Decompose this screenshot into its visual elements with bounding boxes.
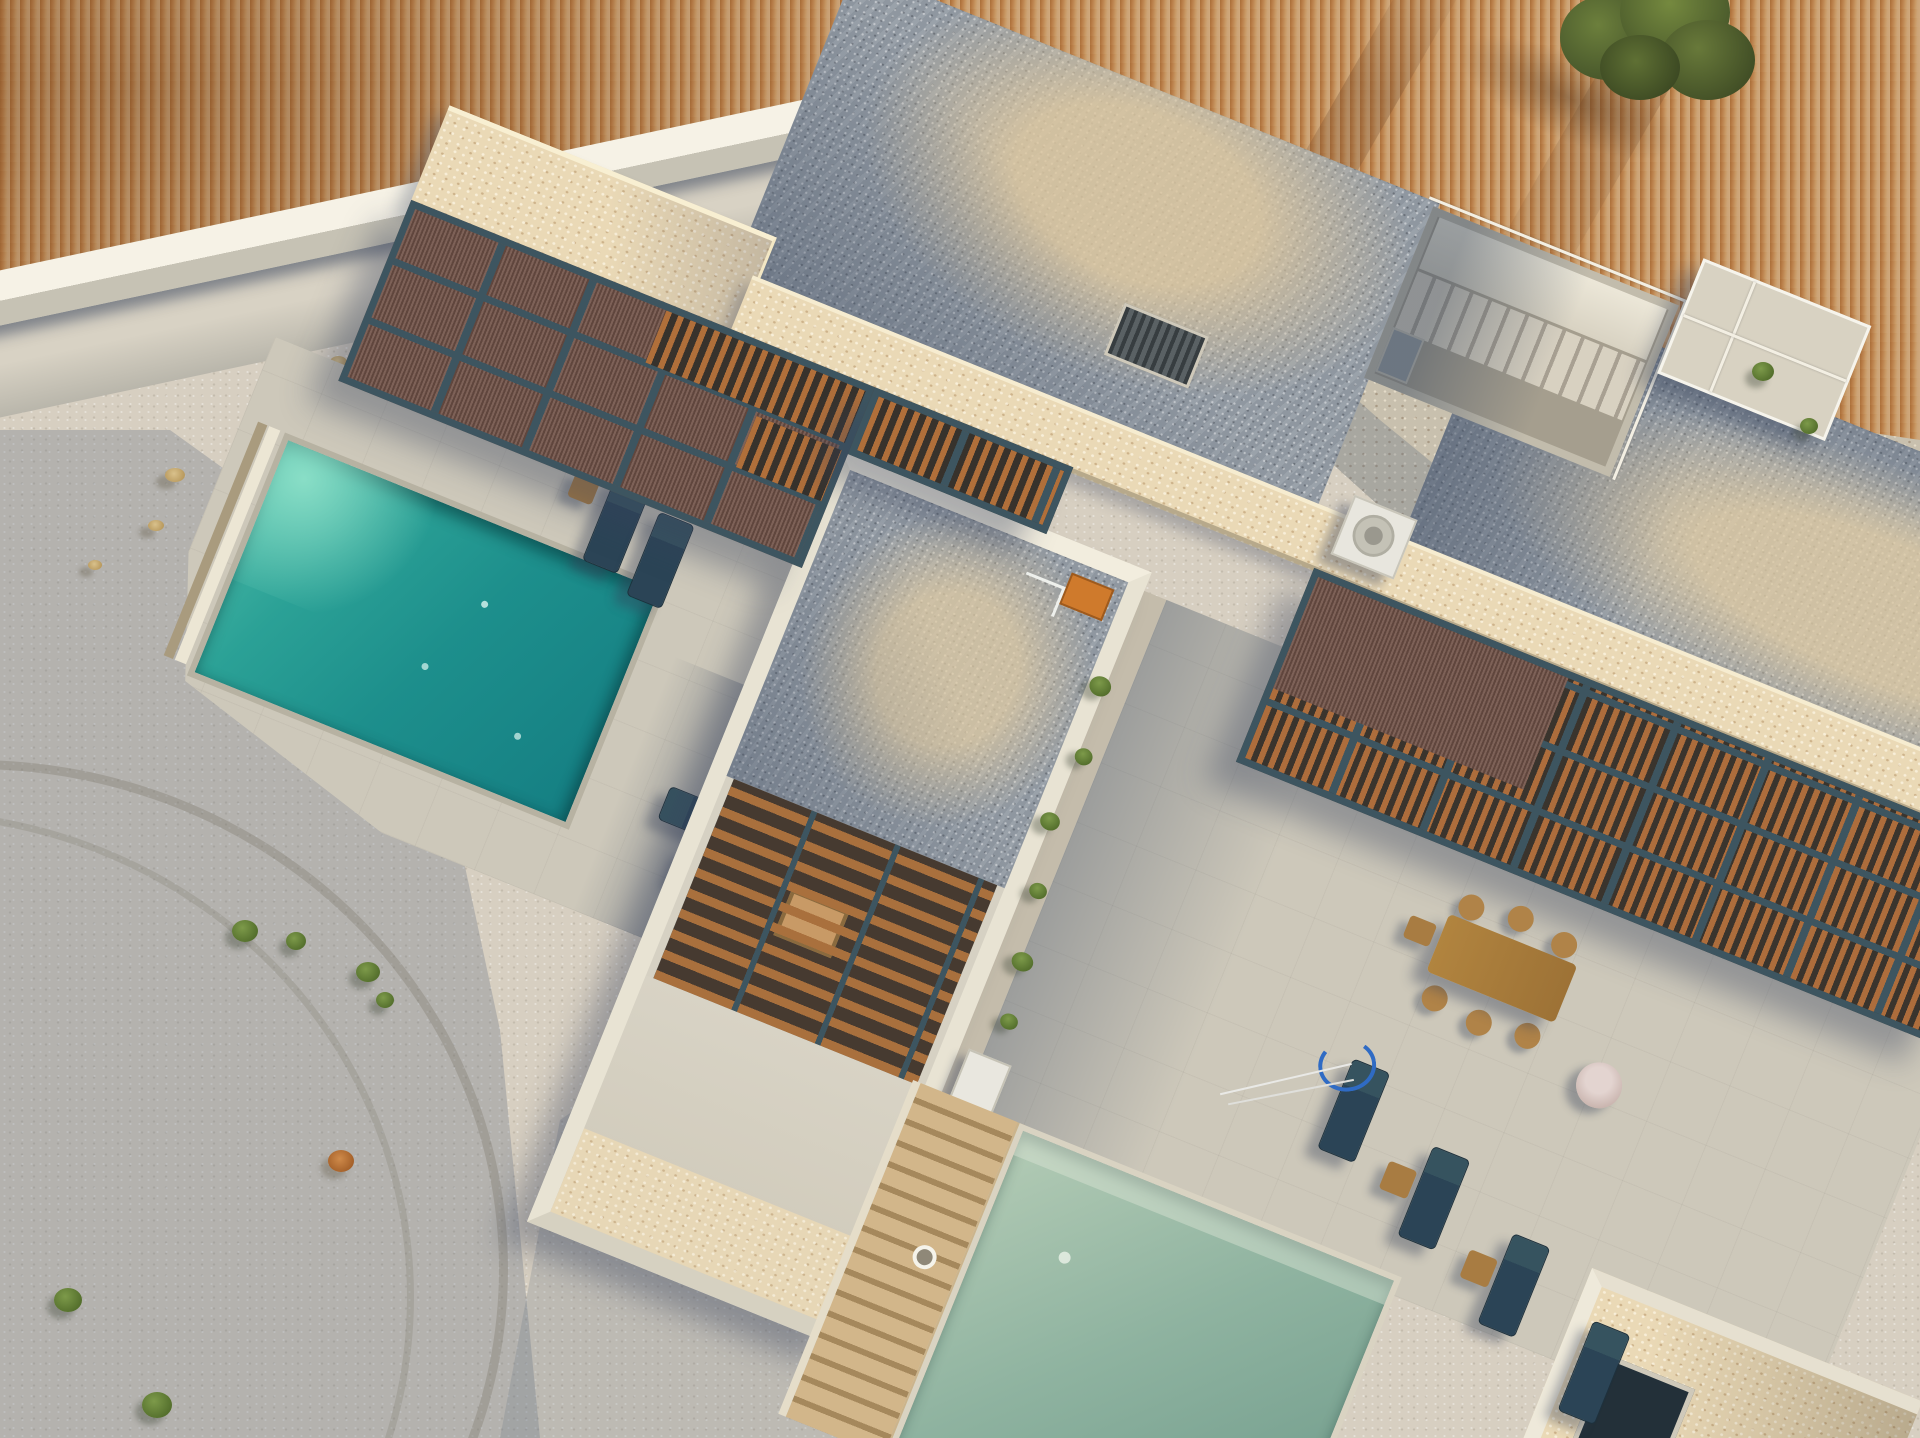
aerial-photo — [0, 0, 1920, 1438]
dining-chair — [1418, 981, 1452, 1015]
pool-light — [513, 732, 522, 741]
dining-chair — [1504, 902, 1538, 936]
shrub — [376, 992, 394, 1008]
shrub — [232, 920, 258, 942]
orange-grass — [328, 1150, 354, 1172]
shrub — [142, 1392, 172, 1418]
shrub — [1752, 362, 1774, 381]
shrub — [1800, 418, 1818, 434]
shrub — [286, 932, 306, 950]
pool-light — [480, 600, 489, 609]
dry-grass-tuft — [148, 520, 164, 531]
dry-grass-tuft — [88, 560, 102, 570]
dining-chair — [1510, 1019, 1544, 1053]
dry-grass-tuft — [165, 468, 185, 482]
dining-table — [1426, 914, 1577, 1023]
pool-light — [420, 662, 429, 671]
olive-tree — [1540, 0, 1770, 155]
pool-light — [1057, 1250, 1073, 1266]
shrub — [356, 962, 380, 982]
shrub — [54, 1288, 82, 1312]
dining-chair — [1462, 1006, 1496, 1040]
